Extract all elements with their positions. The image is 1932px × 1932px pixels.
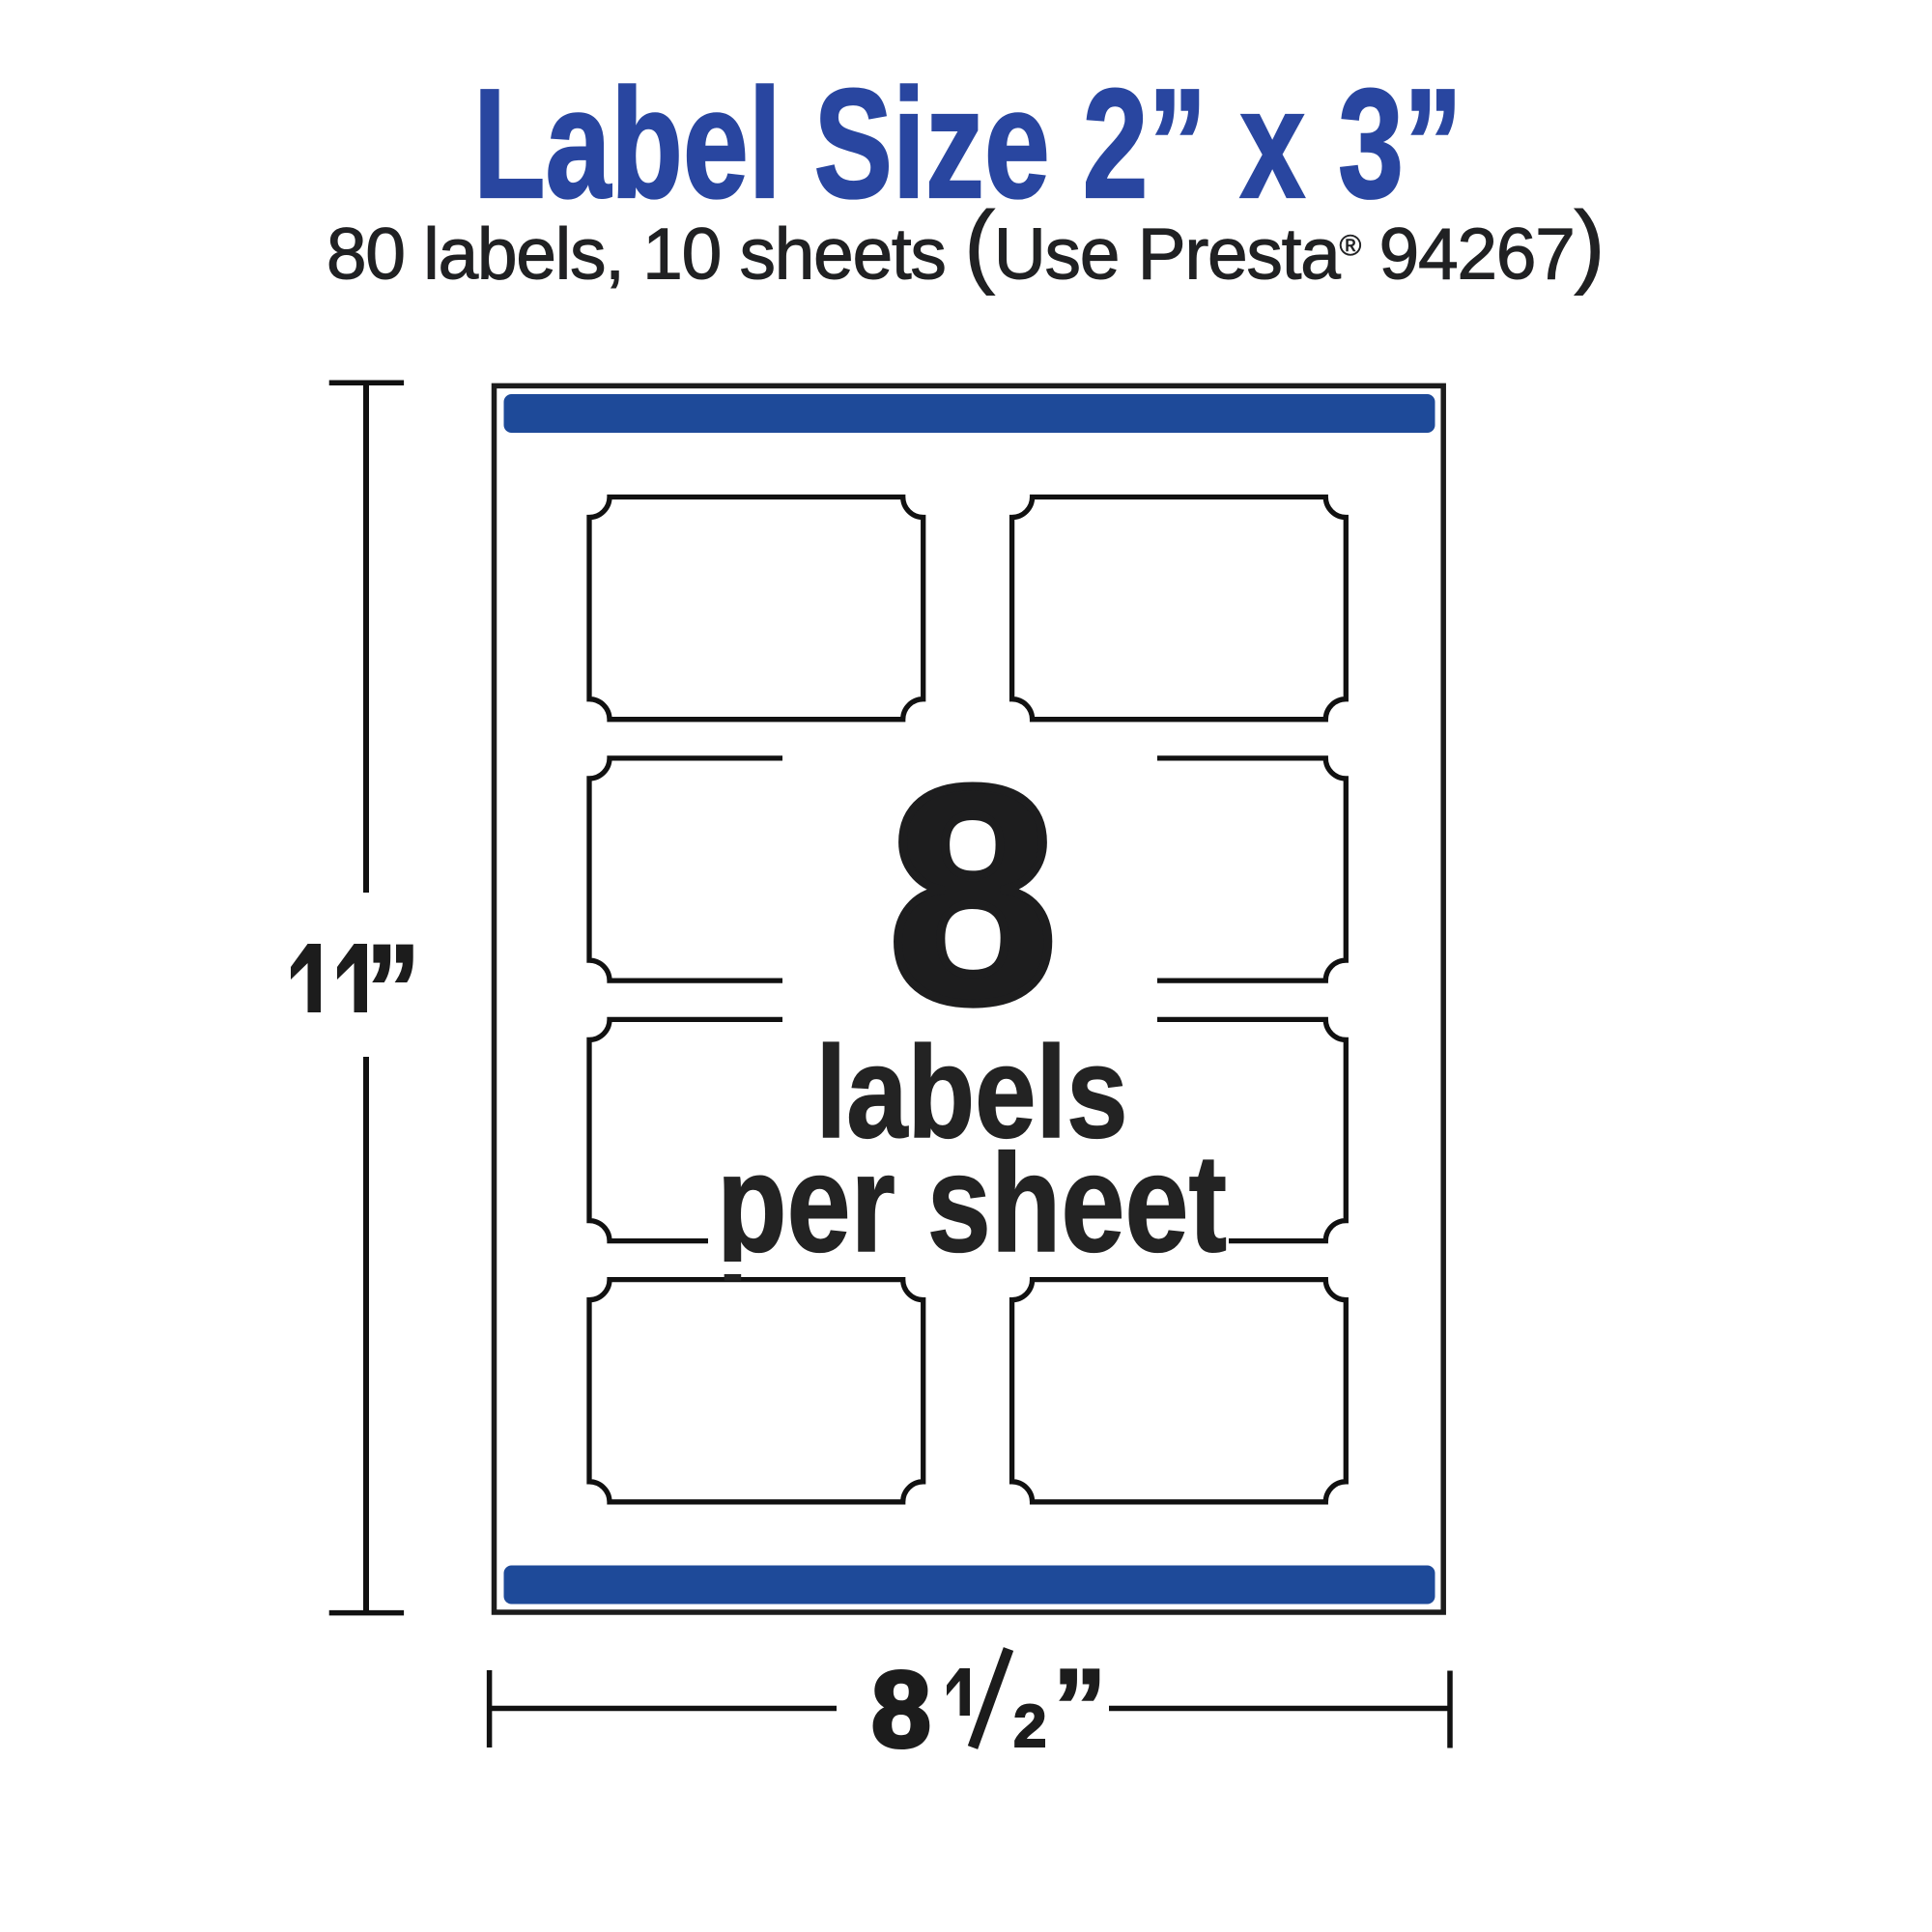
svg-text:2: 2 xyxy=(1013,1693,1046,1760)
svg-text:”: ” xyxy=(366,919,420,1060)
svg-text:per sheet: per sheet xyxy=(717,1125,1227,1281)
svg-text:8: 8 xyxy=(889,724,1058,1066)
svg-text:8: 8 xyxy=(871,1650,931,1770)
svg-text:”: ” xyxy=(1053,1647,1107,1767)
